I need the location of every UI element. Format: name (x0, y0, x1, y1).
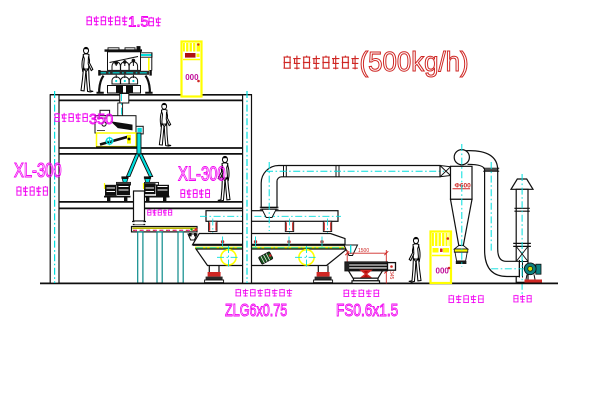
svg-text:FS0.6x1.5: FS0.6x1.5 (336, 302, 398, 321)
svg-text:(500kg/h): (500kg/h) (360, 46, 469, 77)
svg-text:350: 350 (89, 112, 113, 128)
svg-text:345: 345 (388, 271, 394, 280)
svg-text:XL-300: XL-300 (14, 159, 62, 182)
svg-text:000: 000 (436, 267, 450, 276)
svg-text:1500: 1500 (358, 248, 369, 254)
svg-text:1.5: 1.5 (128, 14, 149, 31)
svg-text:XL-300: XL-300 (178, 162, 226, 185)
svg-text:000: 000 (185, 73, 199, 82)
svg-text:ZLG6x0.75: ZLG6x0.75 (225, 301, 287, 321)
